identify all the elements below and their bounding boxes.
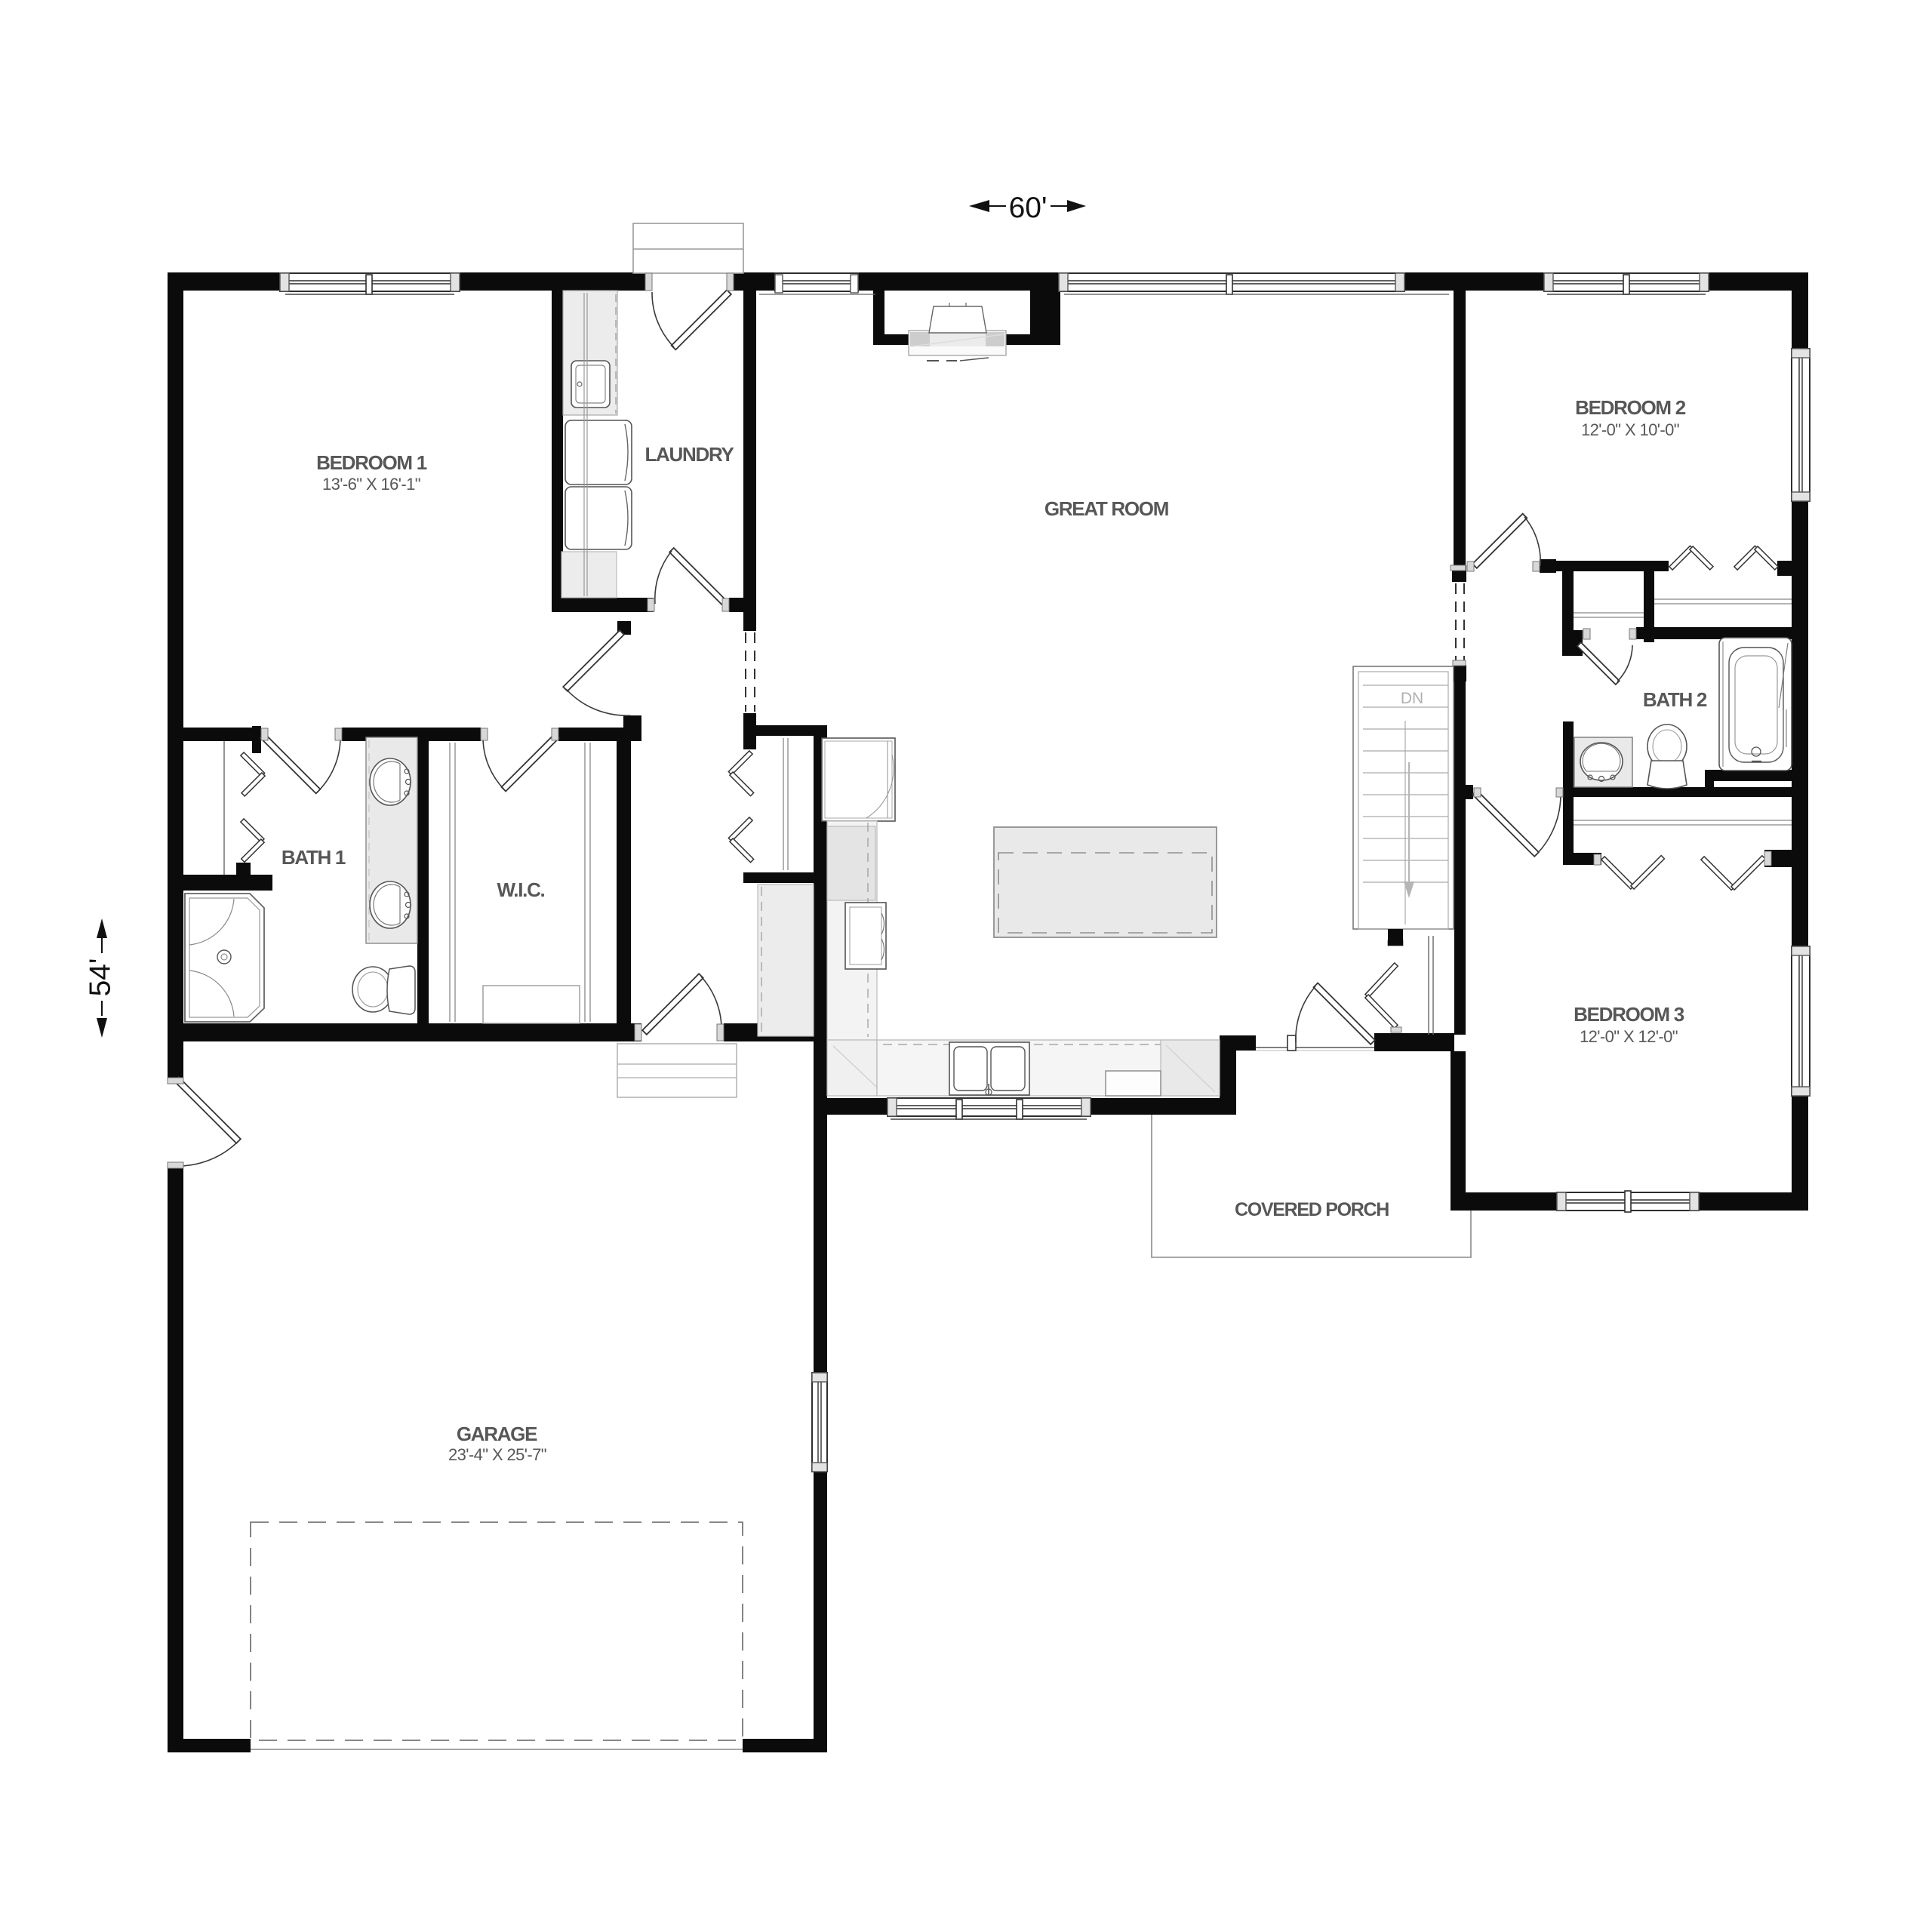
svg-text:54': 54'	[84, 958, 116, 997]
svg-text:60': 60'	[1009, 192, 1048, 224]
svg-text:13'-6" X 16'-1": 13'-6" X 16'-1"	[322, 475, 420, 494]
svg-text:BATH 1: BATH 1	[281, 846, 346, 869]
svg-text:COVERED PORCH: COVERED PORCH	[1235, 1199, 1389, 1220]
svg-text:BEDROOM 1: BEDROOM 1	[316, 451, 427, 474]
svg-text:LAUNDRY: LAUNDRY	[645, 443, 734, 466]
svg-text:GARAGE: GARAGE	[457, 1423, 537, 1445]
svg-text:GREAT ROOM: GREAT ROOM	[1044, 497, 1168, 520]
svg-text:BEDROOM 2: BEDROOM 2	[1575, 396, 1686, 419]
svg-text:12'-0" X 12'-0": 12'-0" X 12'-0"	[1580, 1027, 1678, 1046]
svg-text:BEDROOM 3: BEDROOM 3	[1574, 1003, 1684, 1026]
svg-text:BATH 2: BATH 2	[1643, 688, 1707, 711]
svg-text:12'-0" X 10'-0": 12'-0" X 10'-0"	[1581, 420, 1679, 439]
svg-text:DN: DN	[1401, 690, 1423, 707]
svg-text:23'-4" X 25'-7": 23'-4" X 25'-7"	[448, 1445, 546, 1464]
svg-text:W.I.C.: W.I.C.	[497, 878, 545, 901]
